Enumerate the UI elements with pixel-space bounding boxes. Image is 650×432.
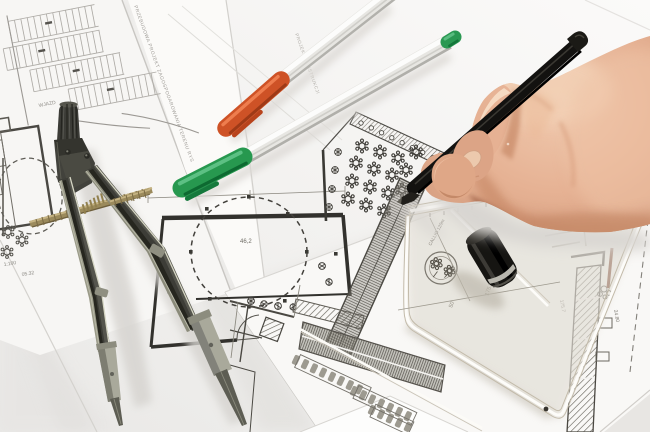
svg-text:46,2: 46,2 — [240, 239, 252, 245]
